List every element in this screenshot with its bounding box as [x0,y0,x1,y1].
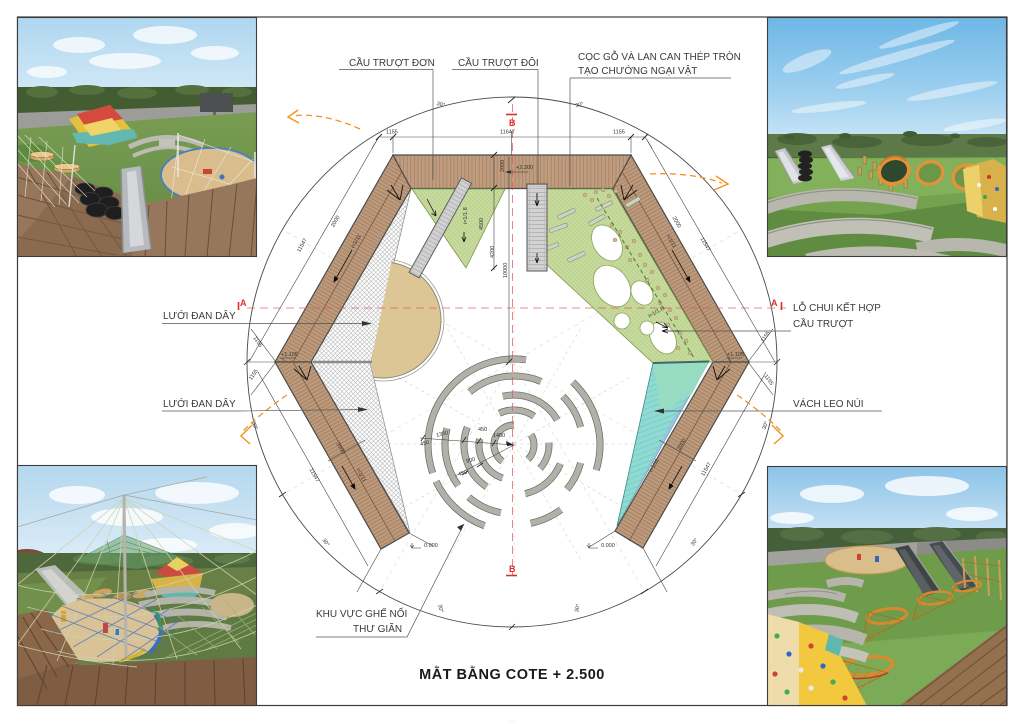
svg-text:CỌC GỖ VÀ LAN CAN THÉP TRÒN: CỌC GỖ VÀ LAN CAN THÉP TRÒN [578,50,741,63]
svg-text:CẦU TRƯỢT: CẦU TRƯỢT [793,317,853,330]
svg-text:MẰT BẰNG COTE + 2.500: MẰT BẰNG COTE + 2.500 [419,665,605,683]
svg-text:LƯỚI ĐAN DÂY: LƯỚI ĐAN DÂY [163,309,236,322]
svg-text:0.000: 0.000 [601,543,615,549]
svg-text:A: A [240,298,247,308]
svg-text:B: B [509,118,516,128]
svg-text:1400: 1400 [493,433,505,439]
svg-text:B: B [509,564,516,574]
svg-text:1155: 1155 [613,130,625,136]
svg-text:4200: 4200 [490,246,496,258]
svg-text:11647: 11647 [500,130,515,136]
svg-text:+1.105: +1.105 [281,352,298,358]
svg-text:10000: 10000 [503,263,509,278]
svg-text:CẦU TRƯỢT ĐƠN: CẦU TRƯỢT ĐƠN [349,56,435,69]
svg-text:VÁCH LEO NÚI: VÁCH LEO NÚI [793,397,864,410]
svg-text:2000: 2000 [500,160,506,172]
svg-text:KHU VỰC GHẾ NỐI: KHU VỰC GHẾ NỐI [316,606,407,620]
svg-text:0.000: 0.000 [424,543,438,549]
svg-text:A: A [771,298,778,308]
svg-text:TẠO CHƯỚNG NGẠI VẬT: TẠO CHƯỚNG NGẠI VẬT [578,64,697,77]
svg-text:THƯ GIÃN: THƯ GIÃN [353,622,402,635]
svg-text:4500: 4500 [479,218,485,230]
svg-text:LƯỚI ĐAN DÂY: LƯỚI ĐAN DÂY [163,397,236,410]
svg-text:LỖ CHUI KẾT HỢP: LỖ CHUI KẾT HỢP [793,301,881,314]
svg-text:+2.300: +2.300 [516,165,533,171]
svg-text:1155: 1155 [386,130,398,136]
svg-text:i=1/1.8: i=1/1.8 [463,207,469,224]
svg-text:+1.105: +1.105 [727,352,744,358]
svg-text:450: 450 [478,427,487,433]
svg-text:· ·: · · [510,719,515,724]
svg-text:CẦU TRƯỢT ĐÔI: CẦU TRƯỢT ĐÔI [458,56,539,69]
